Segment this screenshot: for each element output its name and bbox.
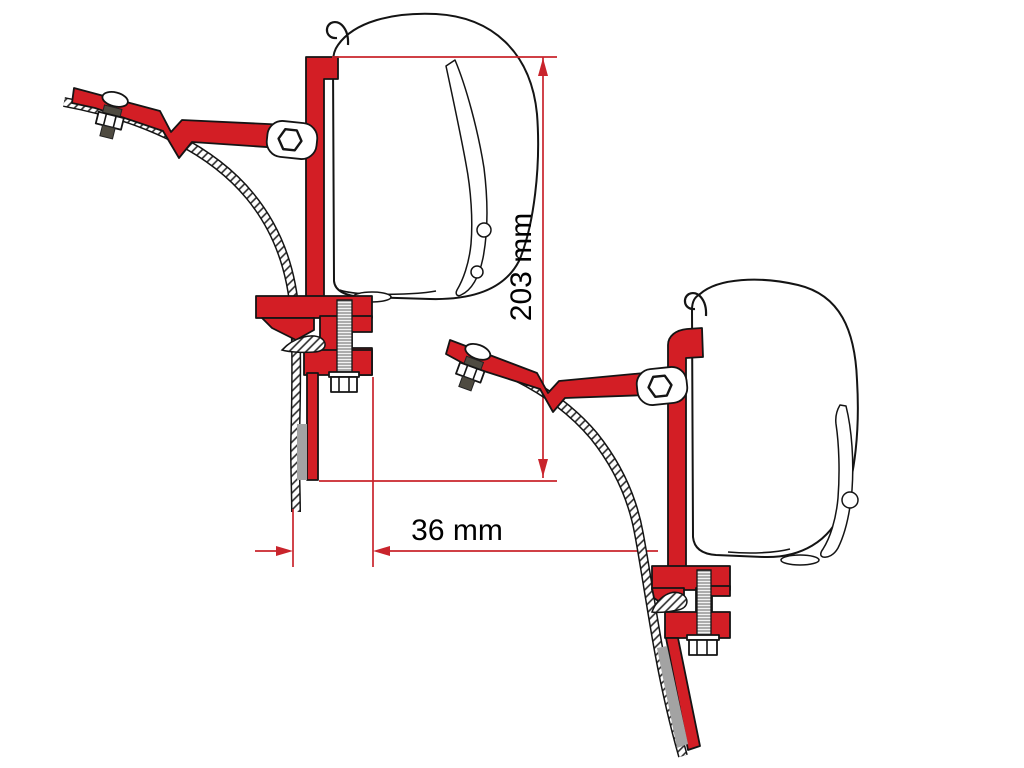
clamp-left bbox=[256, 296, 372, 480]
wall-strip-red bbox=[307, 373, 318, 480]
arrow-right-icon bbox=[276, 546, 293, 556]
profile-notch bbox=[471, 266, 483, 278]
profile-notch bbox=[842, 492, 858, 508]
clamp-threaded-bolt bbox=[337, 300, 352, 372]
clamp-bolt-head bbox=[331, 377, 357, 392]
clamp-right-column bbox=[350, 316, 372, 332]
case-bottom-bump bbox=[781, 555, 819, 565]
arrow-down-icon bbox=[538, 459, 548, 477]
awning-adapter-diagram: 203 mm 36 mm bbox=[0, 0, 1024, 768]
roof-band-hatch bbox=[452, 352, 683, 756]
hinge-right bbox=[635, 365, 688, 406]
bolt-stub bbox=[100, 125, 115, 139]
left-assembly bbox=[64, 14, 538, 512]
clamp-right bbox=[652, 566, 730, 750]
width-dimension-label: 36 mm bbox=[411, 514, 503, 547]
awning-case-right bbox=[685, 280, 858, 565]
hinge-left bbox=[265, 119, 318, 160]
height-dimension-label: 203 mm bbox=[505, 213, 538, 321]
case-outline bbox=[692, 280, 858, 557]
clamp-top-bar bbox=[256, 296, 372, 318]
clamp-threaded-bolt bbox=[697, 570, 711, 636]
arrow-left-icon bbox=[373, 546, 390, 556]
van-roof-profile-right bbox=[452, 352, 683, 756]
gutter-lip-in-clamp bbox=[282, 336, 325, 352]
profile-notch bbox=[477, 223, 491, 237]
arrow-up-icon bbox=[538, 58, 548, 76]
right-assembly bbox=[446, 280, 858, 756]
wall-strip-gray bbox=[297, 424, 307, 480]
diagram-canvas: 203 mm 36 mm bbox=[0, 0, 1024, 768]
clamp-bolt-head bbox=[689, 640, 717, 655]
